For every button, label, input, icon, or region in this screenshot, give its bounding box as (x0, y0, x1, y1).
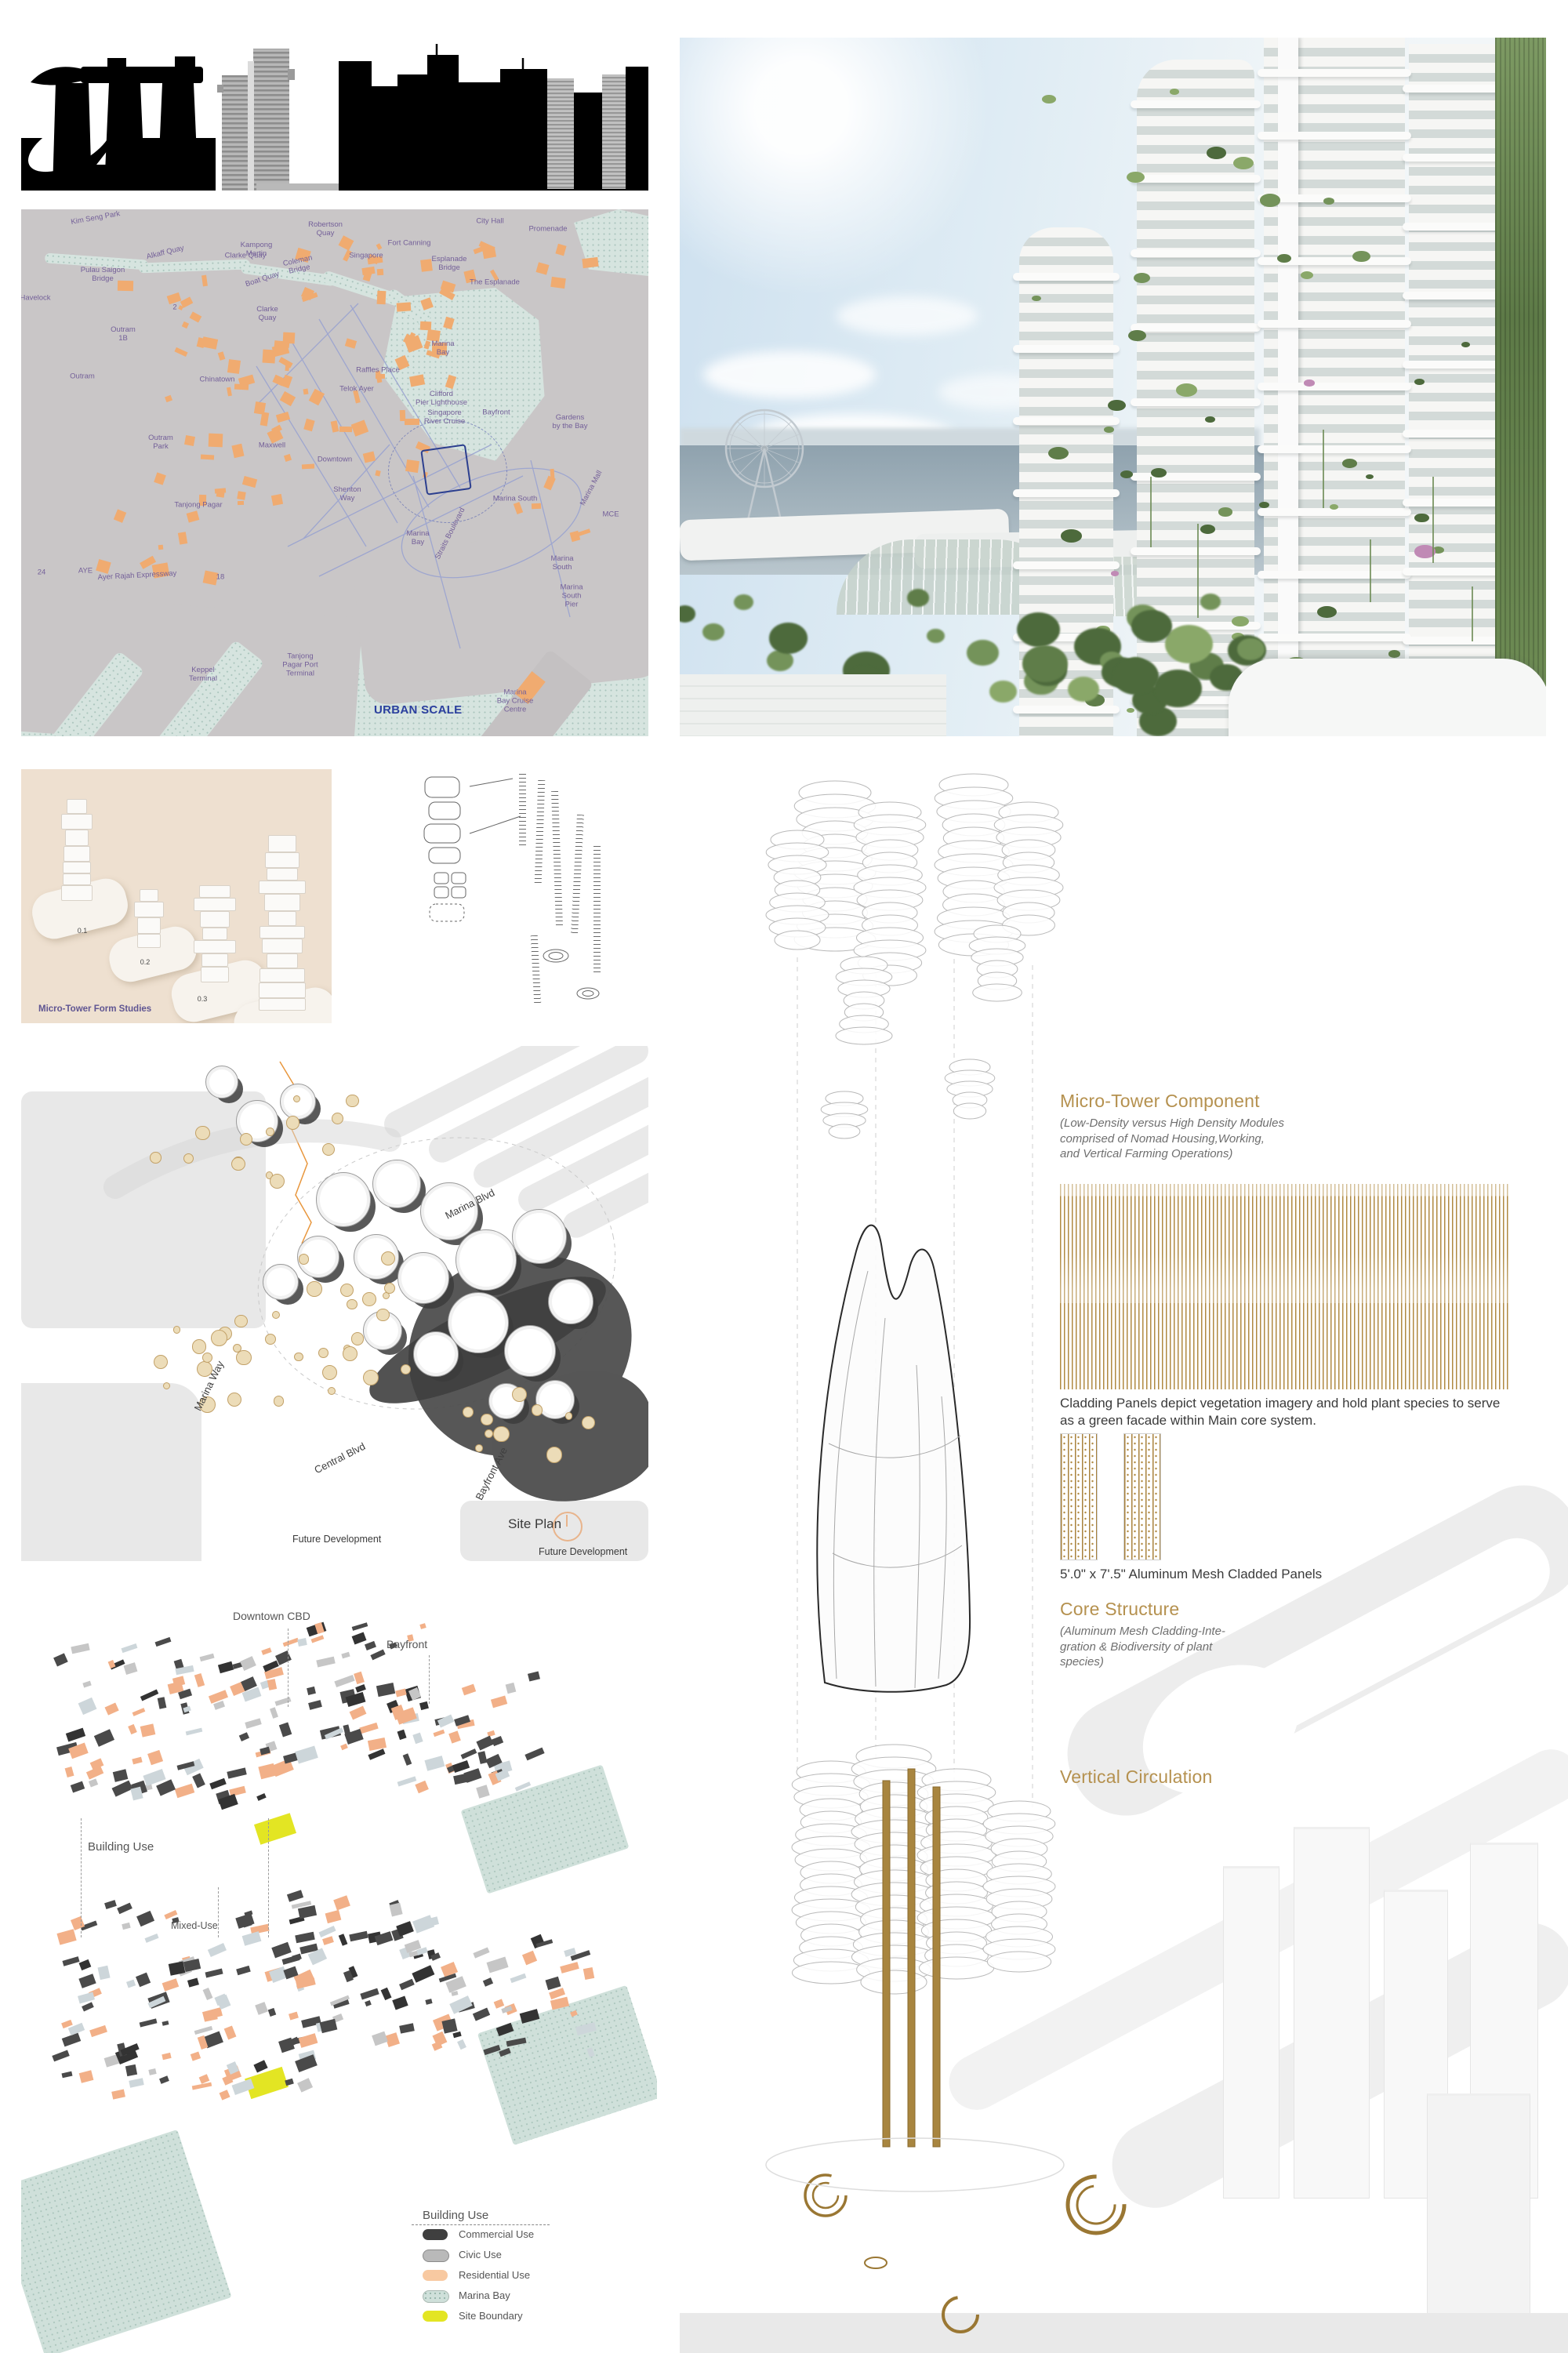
axon-block (82, 2003, 93, 2012)
map-building (377, 291, 387, 304)
axon-block (129, 1724, 138, 1734)
axon-block (218, 1661, 234, 1673)
wireframe-disc (861, 1970, 927, 1994)
axon-block (125, 2064, 137, 2076)
tower-footprint (263, 1264, 299, 1300)
facade-plant (1134, 273, 1150, 283)
axon-block (451, 1991, 458, 1996)
axon-block (522, 1951, 537, 1966)
facade-plant (1304, 379, 1315, 387)
axon-block (295, 2054, 318, 2072)
leader-line (81, 1818, 82, 1937)
axon-block (66, 1727, 86, 1741)
axon-block (71, 1781, 85, 1793)
tree-canopy (989, 681, 1016, 703)
massing-block (63, 873, 92, 886)
axon-block (104, 1900, 117, 1909)
tower-footprint (413, 1331, 459, 1377)
axon-block (491, 1736, 503, 1747)
massing-block (260, 926, 305, 939)
axon-block (360, 1988, 379, 1999)
tree (274, 1396, 285, 1407)
facade-plant (1104, 427, 1114, 433)
axon-block (359, 1722, 379, 1734)
axon-block (285, 2079, 293, 2086)
massing-block (267, 953, 298, 968)
tower-footprint (448, 1292, 509, 1353)
facade-plant (1232, 616, 1248, 626)
balcony-rim (1258, 69, 1411, 77)
axon-block (126, 1979, 136, 1988)
axon-block (122, 1643, 138, 1652)
tree (381, 1251, 395, 1265)
tree-canopy (1131, 610, 1172, 642)
facade-plant (1120, 470, 1133, 478)
tree (340, 1284, 354, 1297)
balcony-rim (1131, 175, 1261, 183)
cladding-imagery-panel (1060, 1184, 1508, 1389)
concept-sketches (403, 769, 642, 1030)
bayfront-label: Bayfront (387, 1638, 427, 1650)
balcony-rim (1258, 445, 1411, 453)
axon-block (89, 1779, 98, 1788)
axon-block (162, 1978, 180, 1992)
future-development-label: Future Development (292, 1534, 381, 1545)
legend-swatch (423, 2290, 449, 2303)
leader-line (288, 1629, 289, 1707)
cloud (837, 296, 978, 336)
tree (347, 1299, 357, 1309)
building-use-diagrams: Downtown CBD Bayfront Building Use Mixed… (21, 1583, 657, 2353)
tower-footprint (316, 1172, 371, 1227)
balcony-rim (1013, 561, 1120, 569)
massing-block (194, 940, 236, 954)
tree (202, 1353, 212, 1363)
mesh-panel-drawing (1060, 1433, 1098, 1560)
balcony-rim (1131, 398, 1261, 406)
core-shell-outline (817, 1226, 970, 1692)
axon-block (239, 1733, 250, 1742)
massing-block (63, 862, 91, 873)
axon-block (402, 1754, 412, 1767)
facade-plant (1260, 194, 1280, 206)
tree (318, 1348, 328, 1358)
tree-canopy (1017, 612, 1060, 647)
legend-item-label: Civic Use (459, 2249, 502, 2260)
axon-block (510, 1974, 526, 1983)
balcony-rim (1258, 320, 1411, 328)
wireframe-disc (836, 1027, 892, 1044)
axon-block (187, 1977, 199, 1988)
axon-block (583, 1967, 595, 1980)
axon-block (477, 1736, 495, 1751)
wireframe-disc (953, 1103, 985, 1119)
axon-block (199, 1654, 213, 1661)
tree (332, 1113, 343, 1124)
massing-block (64, 846, 90, 862)
tree (231, 1157, 245, 1171)
tree-canopy (967, 640, 999, 666)
legend-swatch (423, 2311, 448, 2322)
axon-block (528, 1671, 540, 1681)
massing-block (202, 928, 227, 940)
axon-block (162, 2052, 172, 2060)
plaza (680, 674, 946, 736)
exploded-wireframe (680, 769, 1568, 2353)
axon-block (256, 2002, 269, 2014)
facade-plant (1461, 342, 1470, 347)
massing-block (61, 885, 93, 901)
tree-canopy (907, 589, 929, 606)
axon-block (62, 1956, 79, 1966)
axon-block (307, 1687, 315, 1695)
facade-plant (1414, 379, 1425, 385)
axon-block (256, 1793, 266, 1801)
wireframe-disc (919, 1957, 993, 1979)
north-arrow-icon (553, 1512, 583, 1541)
axon-block (53, 2050, 70, 2062)
axon-block (399, 1979, 415, 1991)
urban-scale-title: URBAN SCALE (374, 703, 462, 717)
axon-block (448, 1730, 461, 1743)
facade-plant (1323, 198, 1334, 205)
facade-plant (1218, 507, 1232, 516)
axon-block (94, 1730, 114, 1748)
massing-block (259, 881, 307, 894)
axon-block (132, 1708, 146, 1716)
map-building (234, 384, 249, 390)
map-building (550, 277, 565, 289)
axon-block (274, 1697, 291, 1706)
wireframe-disc (973, 984, 1022, 1001)
axon-block (487, 1957, 509, 1974)
facade-plant (1259, 502, 1269, 508)
axon-block (56, 1929, 76, 1944)
core-structure-title: Core Structure (1060, 1599, 1179, 1620)
tree (195, 1126, 209, 1140)
massing-block (268, 911, 296, 926)
axon-block (397, 1776, 416, 1786)
massing-block (134, 902, 163, 917)
axon-block (287, 1890, 304, 1903)
tree (233, 1344, 241, 1353)
balcony-rim (1258, 132, 1411, 140)
tree (565, 1412, 573, 1420)
axon-block (462, 1684, 476, 1696)
map-building (271, 494, 283, 507)
tree (173, 1326, 180, 1333)
massing-block (264, 894, 300, 910)
massing-block (267, 868, 299, 881)
marina-bay-plane (21, 2130, 232, 2353)
axon-block (241, 1932, 260, 1946)
hanging-vine (1472, 586, 1473, 641)
axon-block (295, 1931, 315, 1943)
micro-tower-subtitle: (Low-Density versus High Density Modules… (1060, 1116, 1284, 1162)
axon-block (224, 2025, 237, 2039)
tower-footprint (456, 1229, 517, 1291)
axon-block (83, 1680, 93, 1687)
axon-block (389, 1902, 402, 1916)
map-building (377, 269, 383, 275)
green-wall (1495, 38, 1546, 736)
axon-block (86, 1767, 103, 1780)
axon-block (319, 1926, 336, 1937)
axon-block (425, 1756, 445, 1772)
map-building (238, 501, 244, 505)
axon-block (78, 1992, 95, 2003)
panel-size-note: 5'.0" x 7'.5" Aluminum Mesh Cladded Pane… (1060, 1566, 1322, 1583)
wireframe-disc (829, 1124, 860, 1138)
tree (475, 1444, 483, 1452)
massing-block (137, 917, 160, 934)
exploded-axon-column: Micro-Tower Component (Low-Density versu… (680, 769, 1568, 2353)
coil-sketch (593, 846, 601, 973)
massing-block (201, 967, 228, 982)
axon-block (381, 1988, 392, 2000)
map-building (208, 434, 222, 448)
axon-block (452, 1759, 470, 1772)
massing-block (268, 835, 296, 852)
axon-block (434, 1730, 445, 1738)
tower-footprint (205, 1066, 238, 1098)
facade-plant (1061, 529, 1082, 543)
axon-block (268, 2008, 276, 2017)
legend-item-label: Commercial Use (459, 2228, 534, 2240)
massing-block (259, 982, 307, 998)
balcony-rim (1013, 706, 1120, 714)
massing-block (262, 939, 303, 953)
axon-block (352, 1632, 367, 1645)
tree (294, 1353, 303, 1362)
map-building (184, 435, 195, 446)
facade-plant (1414, 514, 1428, 522)
tree (299, 1254, 310, 1265)
balcony-rim (1258, 383, 1411, 390)
axon-block (395, 1688, 407, 1697)
axon-block (325, 1910, 341, 1923)
axon-block (111, 1780, 132, 1796)
axon-block (525, 1748, 545, 1761)
massing-block (67, 799, 86, 814)
axon-block (254, 2061, 268, 2073)
tower-footprint (548, 1279, 593, 1324)
axon-block (140, 1690, 158, 1701)
facade-plant (1151, 468, 1167, 477)
axon-block (111, 2090, 125, 2100)
axon-block (397, 1730, 407, 1740)
map-building (532, 503, 541, 509)
map-building (118, 281, 133, 292)
axon-block (97, 1966, 110, 1980)
hanging-vine (1323, 430, 1324, 508)
facade-plant (1342, 459, 1357, 468)
axon-block (145, 1934, 159, 1943)
massing-block (259, 998, 306, 1011)
hanging-vine (1432, 477, 1434, 563)
balcony-rim (1131, 547, 1261, 555)
tree (351, 1332, 364, 1345)
tree (463, 1407, 474, 1418)
map-building (426, 329, 441, 342)
axon-block (289, 2012, 299, 2021)
axon-block (396, 1922, 413, 1937)
massing-block (260, 968, 306, 982)
tower-footprint (504, 1325, 556, 1377)
skyline-graphic (21, 38, 648, 202)
axon-block (267, 1679, 276, 1690)
downtown-cbd-label: Downtown CBD (233, 1610, 310, 1622)
marina-bay-plane (460, 1764, 629, 1894)
spiral-coils (805, 2175, 1124, 2332)
wireframe-disc (775, 931, 820, 950)
legend-swatch (423, 2250, 449, 2262)
axon-block (461, 1748, 477, 1759)
axon-block (105, 1702, 119, 1715)
axon-block (298, 1905, 317, 1919)
axon-block (258, 1763, 276, 1779)
axon-block (53, 1654, 67, 1667)
axon-block (65, 1767, 74, 1777)
tree (328, 1387, 336, 1395)
massing-block (65, 830, 88, 846)
axon-block (157, 1697, 165, 1708)
presentation-board: { "colors": { "accent_gold": "#b5914f", … (0, 0, 1568, 2353)
axon-block (172, 1676, 185, 1687)
hanging-vine (1150, 477, 1152, 547)
axon-block (147, 1750, 163, 1765)
balcony-rim (1131, 100, 1261, 108)
facade-plant (1170, 89, 1179, 94)
balcony-rim (1013, 345, 1120, 353)
map-building (396, 302, 410, 311)
axon-block (365, 1641, 376, 1650)
axon-block (78, 2070, 93, 2082)
massing-block (200, 911, 230, 928)
tree (343, 1346, 358, 1361)
tree-canopy (734, 594, 753, 610)
map-building (201, 454, 215, 459)
axon-block (463, 1768, 481, 1783)
axon-block (132, 1756, 142, 1764)
massing-block (61, 814, 92, 830)
hanging-vine (1370, 539, 1371, 602)
tree (163, 1382, 170, 1389)
axon-block (129, 2078, 143, 2087)
tree (362, 1292, 376, 1306)
micro-tower-title: Micro-Tower Component (1060, 1091, 1260, 1112)
axon-block (79, 1959, 92, 1970)
axon-block (437, 1715, 454, 1728)
axon-block (140, 2019, 157, 2028)
axon-block (392, 1995, 408, 2010)
leader-line (218, 1887, 219, 1937)
axon-block (376, 1683, 396, 1697)
axon-block (308, 1700, 322, 1710)
axon-block (505, 1683, 516, 1694)
axon-block (183, 1959, 201, 1972)
axon-block (352, 1623, 368, 1632)
axon-block (194, 1673, 205, 1687)
tree (546, 1447, 563, 1463)
axon-block (283, 1638, 299, 1647)
tree (266, 1127, 274, 1136)
cladding-note: Cladding Panels depict vegetation imager… (1060, 1395, 1500, 1429)
tree (532, 1404, 543, 1415)
axon-block (298, 2033, 318, 2048)
leader-line (268, 1818, 269, 1937)
axon-block (192, 1773, 205, 1788)
tree (582, 1416, 595, 1429)
mesh-panel-drawing (1123, 1433, 1161, 1560)
axon-block (349, 1930, 368, 1941)
legend-item-label: Residential Use (459, 2269, 530, 2281)
legend-swatch (423, 2270, 448, 2281)
map-building (203, 570, 219, 585)
axon-block (334, 1896, 350, 1911)
study-number: 0.3 (198, 995, 208, 1003)
tree-canopy (1237, 638, 1265, 660)
axon-block (202, 1988, 212, 2000)
tree (183, 1153, 194, 1164)
axon-block (271, 1941, 292, 1958)
axon-block (78, 1697, 97, 1714)
axon-block (355, 1684, 365, 1692)
studies-caption: Micro-Tower Form Studies (38, 1004, 151, 1014)
axon-block (311, 1636, 325, 1643)
axon-block (136, 1911, 154, 1926)
skyline-silhouette (21, 38, 648, 202)
axon-block (335, 1675, 355, 1687)
map-building (420, 259, 433, 272)
axon-block (371, 1650, 386, 1661)
map-building (158, 545, 163, 550)
axon-block (124, 1662, 138, 1675)
study-number: 0.1 (78, 927, 88, 935)
balcony-rim (1258, 571, 1411, 579)
map-building (152, 562, 169, 578)
site-plan: Marina BlvdMarina WayCentral BlvdBayfron… (21, 1046, 648, 1561)
tree (234, 1315, 247, 1327)
axon-block (343, 1725, 351, 1737)
facade-plant (1128, 330, 1146, 341)
legend-swatch (423, 2229, 448, 2240)
axon-block (491, 1696, 507, 1708)
axon-block (185, 1728, 201, 1736)
axon-block (241, 1656, 257, 1671)
axon-block (399, 2023, 414, 2033)
legend-title: Building Use (423, 2209, 488, 2222)
axon-block (175, 1784, 194, 1798)
tree-canopy (702, 623, 724, 641)
tree-canopy (1165, 625, 1213, 663)
tree (493, 1426, 510, 1443)
axon-block (205, 1968, 223, 1977)
tree (192, 1339, 206, 1353)
tree (265, 1334, 276, 1345)
future-development-label: Future Development (539, 1546, 627, 1557)
facade-plant (1207, 147, 1226, 159)
axon-block (316, 1656, 336, 1667)
axon-block (341, 1652, 350, 1659)
facade-plant (1176, 383, 1197, 397)
axon-block (183, 1705, 191, 1712)
massing-block (201, 953, 227, 966)
axon-block (474, 1947, 490, 1958)
axon-block (477, 1785, 490, 1799)
axon-block (340, 1743, 347, 1750)
site-boundary-patch (254, 1813, 296, 1845)
